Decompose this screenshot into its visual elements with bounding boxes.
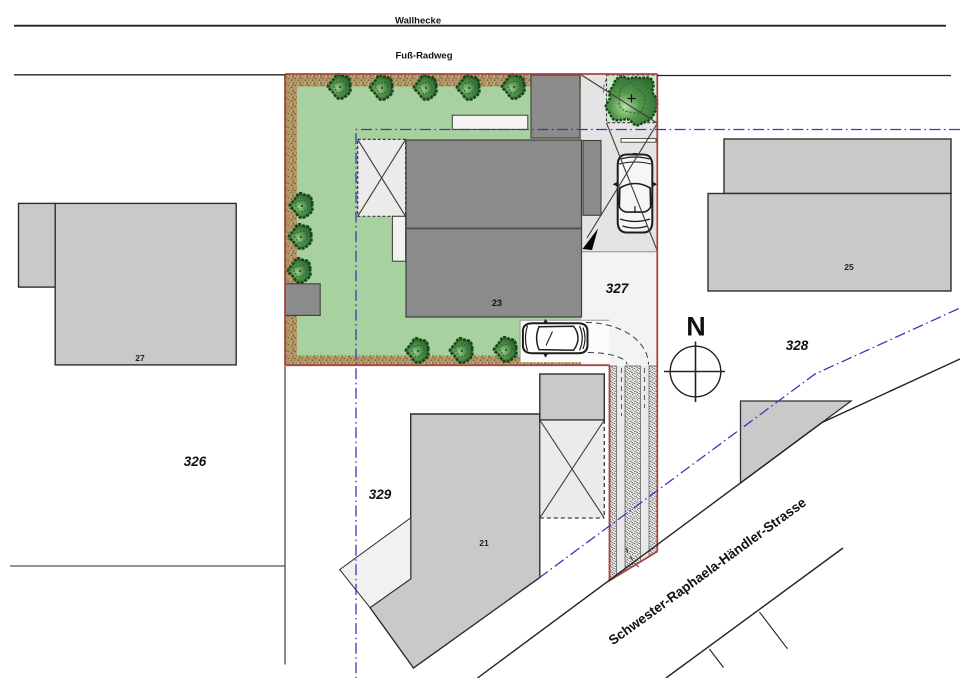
- svg-text:329: 329: [369, 487, 392, 502]
- svg-text:327: 327: [606, 281, 630, 296]
- svg-text:25: 25: [844, 262, 854, 272]
- svg-text:N: N: [686, 312, 706, 342]
- svg-text:27: 27: [135, 353, 145, 363]
- svg-text:Fuß-Radweg: Fuß-Radweg: [396, 51, 453, 62]
- svg-text:326: 326: [184, 454, 207, 469]
- svg-text:Wallhecke: Wallhecke: [395, 16, 441, 27]
- svg-text:328: 328: [786, 338, 809, 353]
- svg-text:23: 23: [492, 298, 502, 308]
- svg-text:21: 21: [479, 538, 489, 548]
